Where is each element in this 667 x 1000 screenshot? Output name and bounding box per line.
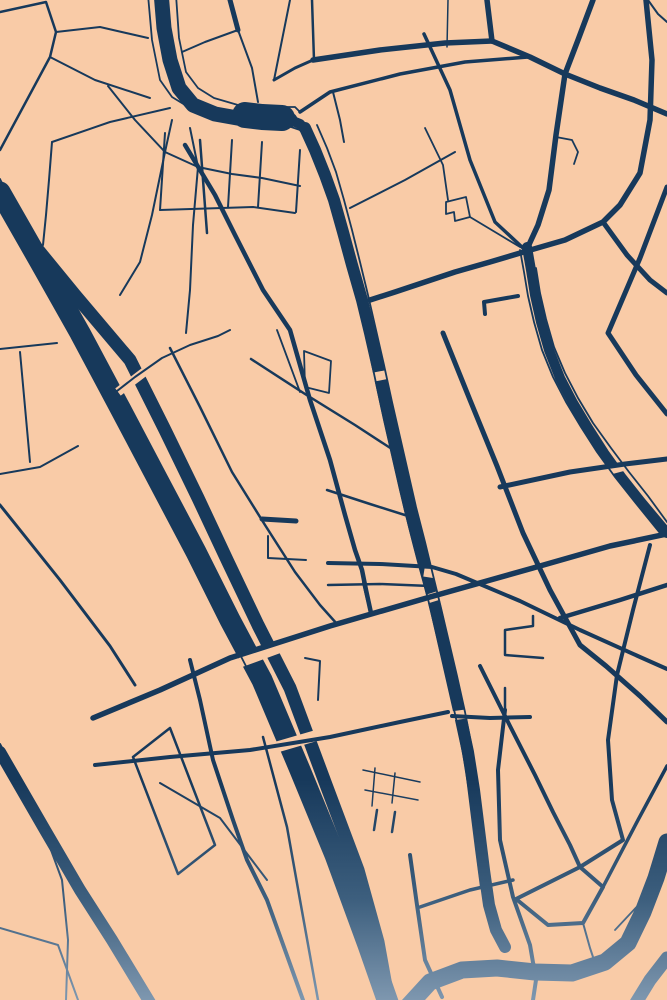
river-pool xyxy=(245,115,282,118)
map-poster xyxy=(0,0,667,1000)
map-svg xyxy=(0,0,667,1000)
